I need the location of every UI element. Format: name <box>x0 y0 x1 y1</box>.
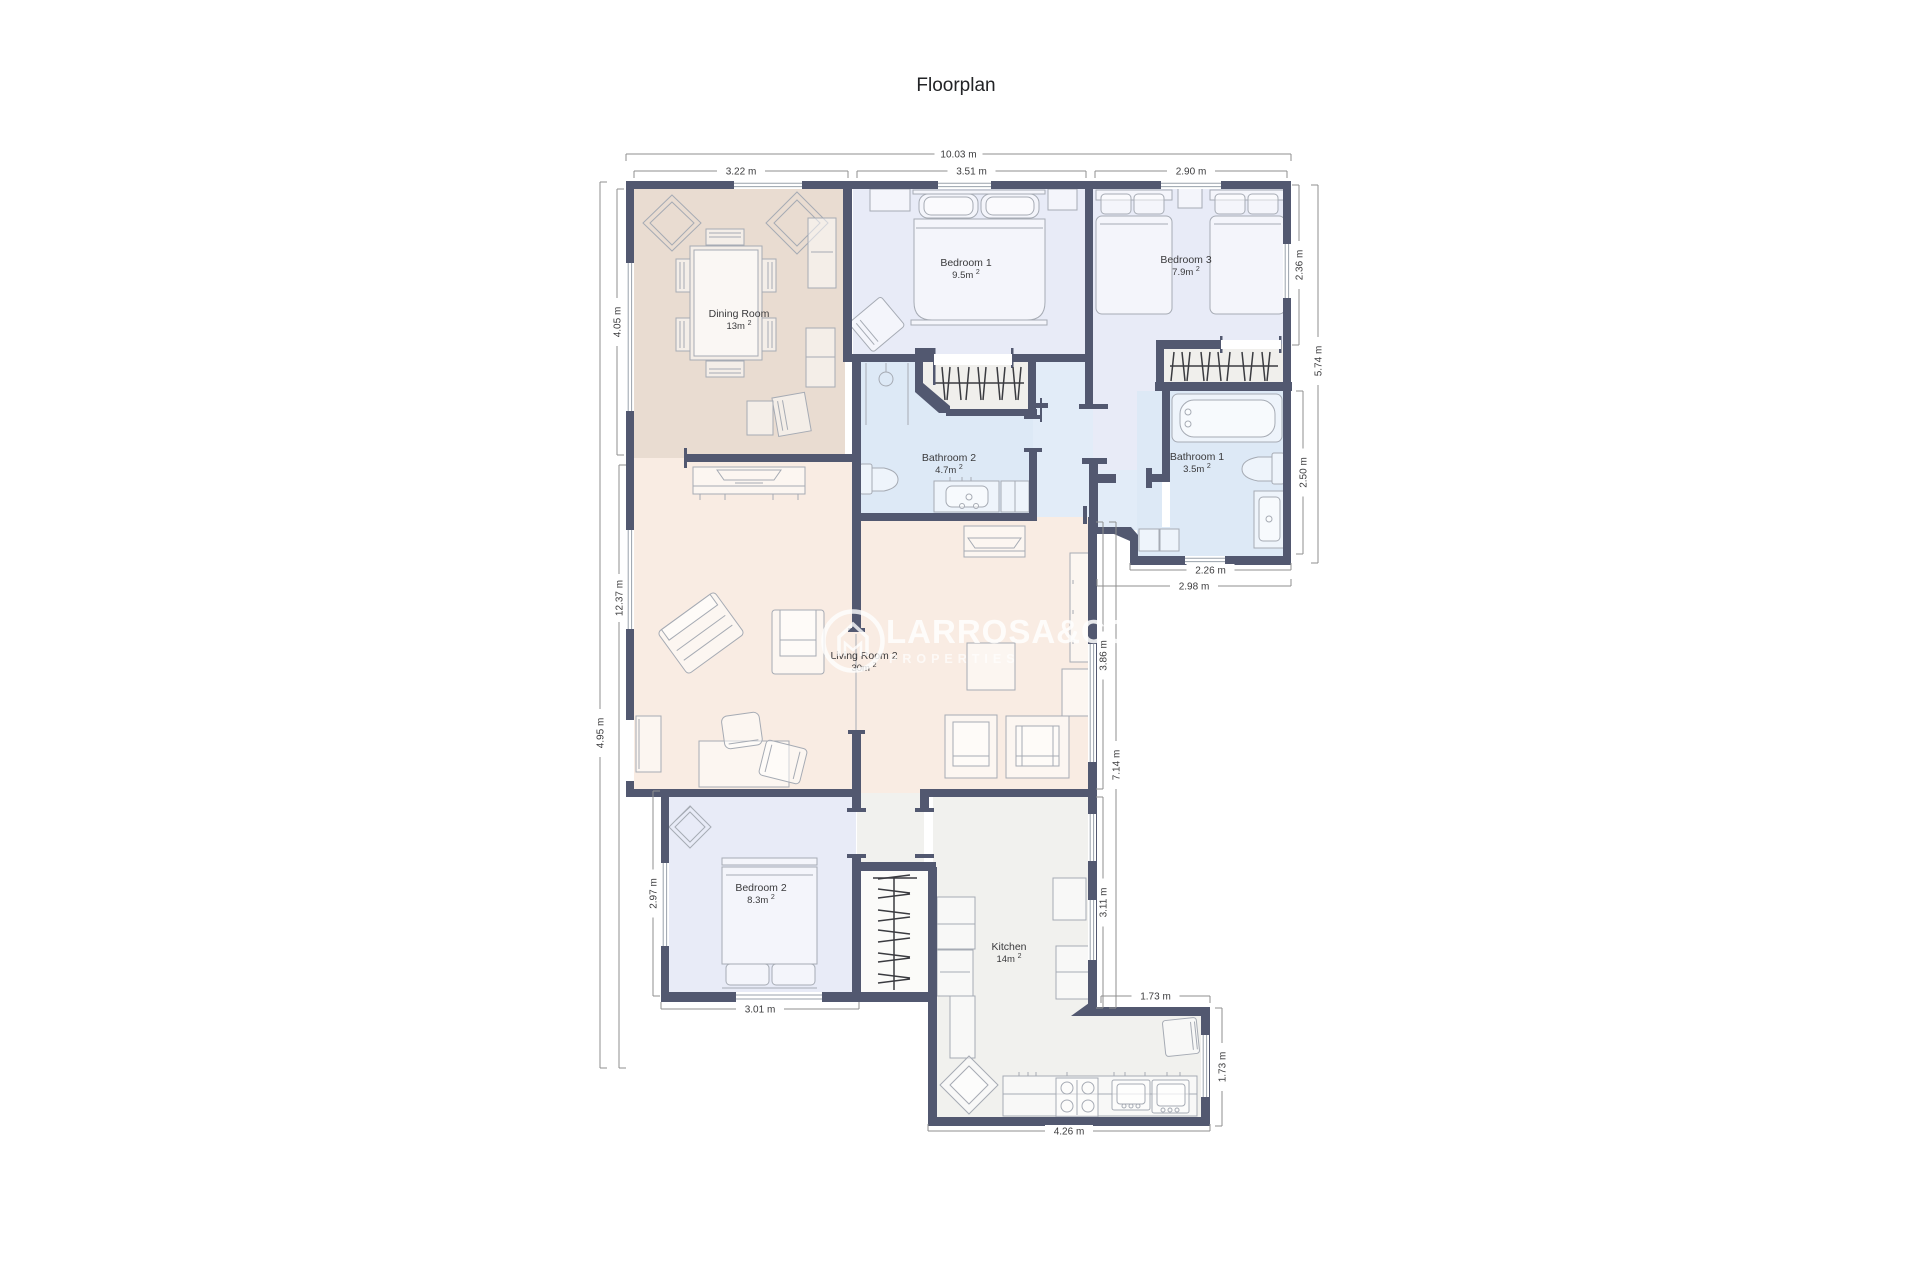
svg-text:2.50 m: 2.50 m <box>1299 457 1310 488</box>
svg-text:Bathroom 1: Bathroom 1 <box>1170 451 1224 463</box>
svg-text:Bedroom 2: Bedroom 2 <box>735 882 787 894</box>
svg-text:8.3m 2: 8.3m 2 <box>747 894 775 906</box>
svg-text:2.36 m: 2.36 m <box>1295 250 1306 281</box>
svg-text:4.95 m: 4.95 m <box>596 718 607 749</box>
svg-text:7.9m 2: 7.9m 2 <box>1172 266 1200 278</box>
svg-text:7.14 m: 7.14 m <box>1112 750 1123 781</box>
svg-text:9.5m 2: 9.5m 2 <box>952 269 980 281</box>
svg-text:4.26 m: 4.26 m <box>1054 1127 1085 1138</box>
svg-text:4.7m 2: 4.7m 2 <box>935 464 963 476</box>
svg-text:Bedroom 1: Bedroom 1 <box>940 257 992 269</box>
svg-text:LARROSA&CO: LARROSA&CO <box>886 613 1133 650</box>
svg-text:1.73 m: 1.73 m <box>1140 992 1171 1003</box>
svg-text:5.74 m: 5.74 m <box>1314 346 1325 377</box>
svg-text:2.90 m: 2.90 m <box>1176 167 1207 178</box>
svg-text:4.05 m: 4.05 m <box>613 307 624 338</box>
svg-text:2.26 m: 2.26 m <box>1195 566 1226 577</box>
svg-text:3.11 m: 3.11 m <box>1099 888 1110 918</box>
svg-text:3.51 m: 3.51 m <box>956 167 987 178</box>
svg-text:2.98 m: 2.98 m <box>1179 582 1210 593</box>
svg-text:2.97 m: 2.97 m <box>649 878 660 909</box>
svg-text:Bedroom 3: Bedroom 3 <box>1160 254 1212 266</box>
svg-text:10.03 m: 10.03 m <box>940 150 976 161</box>
svg-text:PROPERTIES: PROPERTIES <box>889 652 1020 666</box>
svg-text:12.37 m: 12.37 m <box>615 580 626 616</box>
svg-text:3.5m 2: 3.5m 2 <box>1183 463 1211 475</box>
svg-text:3.01 m: 3.01 m <box>745 1005 776 1016</box>
svg-text:1.73 m: 1.73 m <box>1218 1052 1229 1083</box>
svg-text:Floorplan: Floorplan <box>916 75 995 96</box>
svg-text:Kitchen: Kitchen <box>991 941 1026 953</box>
svg-text:Bathroom 2: Bathroom 2 <box>922 452 976 464</box>
svg-text:3.22 m: 3.22 m <box>726 167 757 178</box>
svg-text:Dining Room: Dining Room <box>709 308 770 320</box>
